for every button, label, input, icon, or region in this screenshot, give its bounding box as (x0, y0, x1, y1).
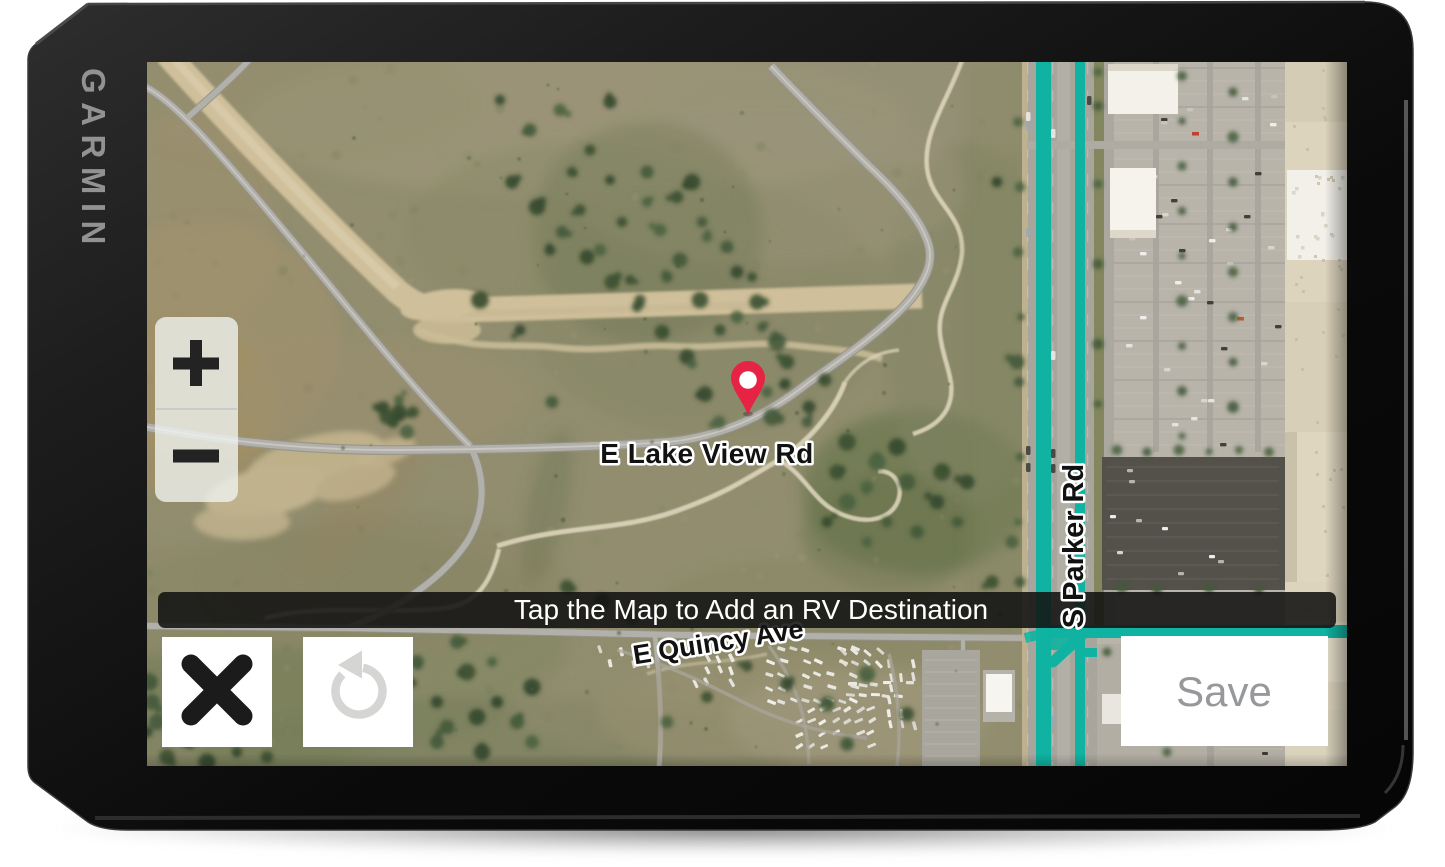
svg-text:S Parker Rd: S Parker Rd (1058, 464, 1090, 628)
svg-text:Save: Save (1176, 668, 1272, 715)
svg-text:Tap the Map to Add an RV Desti: Tap the Map to Add an RV Destination (514, 594, 988, 625)
svg-text:E Lake View Rd: E Lake View Rd (600, 438, 813, 469)
